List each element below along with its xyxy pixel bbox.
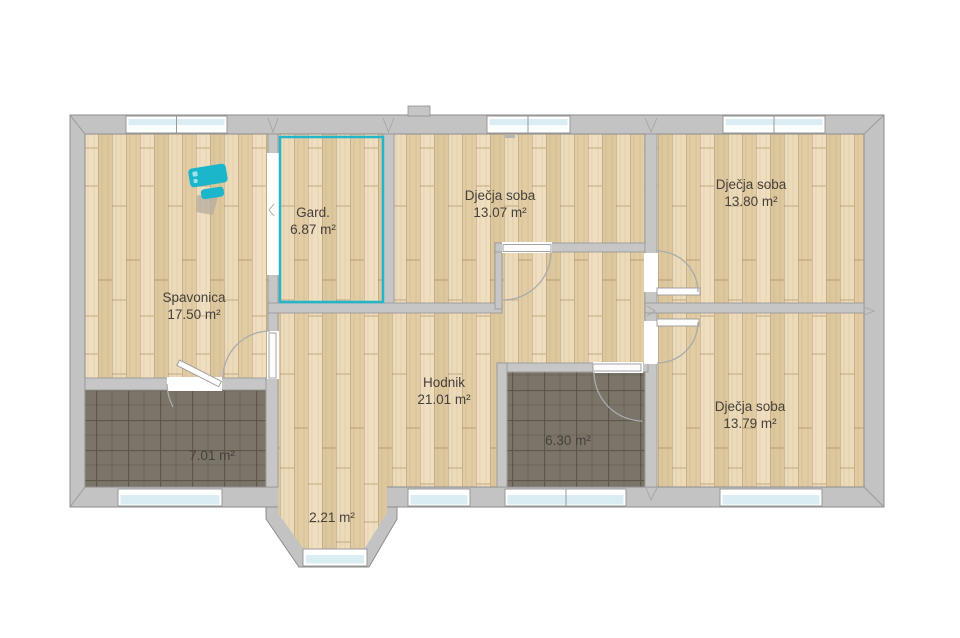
window-kupaonica2[interactable] <box>505 489 626 506</box>
room-label-area: 7.01 m² <box>189 448 235 463</box>
room-garderoba[interactable] <box>278 137 383 303</box>
room-label-area: 6.87 m² <box>290 222 336 237</box>
room-label-name: Dječja soba <box>715 399 786 414</box>
wall-djecja2-djecja3 <box>645 303 864 313</box>
door-djecja3-gap <box>644 321 658 364</box>
room-label-area: 2.21 m² <box>309 510 355 525</box>
chimney-vent-mark <box>408 106 430 116</box>
room-label-area: 17.50 m² <box>167 307 221 322</box>
room-kupaonica-2-floor[interactable] <box>507 372 645 487</box>
room-label-area: 13.80 m² <box>724 194 778 209</box>
room-label-name: Spavonica <box>162 290 226 305</box>
window-kupaonica1[interactable] <box>118 489 222 506</box>
door-djecja1-leaf[interactable] <box>503 245 551 252</box>
wall-kupaonica2-left <box>497 363 507 487</box>
room-djecja-soba-2[interactable] <box>657 134 864 303</box>
window-djecja1[interactable] <box>487 116 570 133</box>
wall-gard-djecja1 <box>383 134 394 313</box>
floor-plan-page: Spavonica 17.50 m² Gard. 6.87 m² Dječja … <box>0 0 960 638</box>
room-kupaonica-1-floor[interactable] <box>85 390 266 487</box>
room-label-name: Gard. <box>296 205 330 220</box>
door-spavonica-leaf[interactable] <box>269 333 276 378</box>
wall-djecja1-connector <box>495 243 502 309</box>
window-djecja2[interactable] <box>723 116 825 133</box>
room-label-area: 13.79 m² <box>723 416 777 431</box>
room-label-area: 13.07 m² <box>473 205 527 220</box>
door-kupaonica2-leaf[interactable] <box>593 364 641 371</box>
room-label-area: 21.01 m² <box>417 392 471 407</box>
room-label-name: Hodnik <box>423 375 465 390</box>
wall-gard-hodnik <box>268 303 502 313</box>
door-djecja2-gap <box>644 253 658 292</box>
room-spavonica[interactable] <box>85 134 268 378</box>
bay-window[interactable] <box>303 549 367 566</box>
floor-plan-canvas[interactable]: Spavonica 17.50 m² Gard. 6.87 m² Dječja … <box>0 0 960 638</box>
window-hodnik[interactable] <box>408 489 470 506</box>
opening-spavonica-gard[interactable] <box>267 153 279 275</box>
window-spavonica[interactable] <box>126 116 227 133</box>
room-label-area: 6.30 m² <box>545 433 591 448</box>
room-label-name: Dječja soba <box>716 177 787 192</box>
wall-kupaonica1-right <box>266 378 278 487</box>
room-label-name: Dječja soba <box>465 188 536 203</box>
window-djecja3[interactable] <box>720 489 822 506</box>
